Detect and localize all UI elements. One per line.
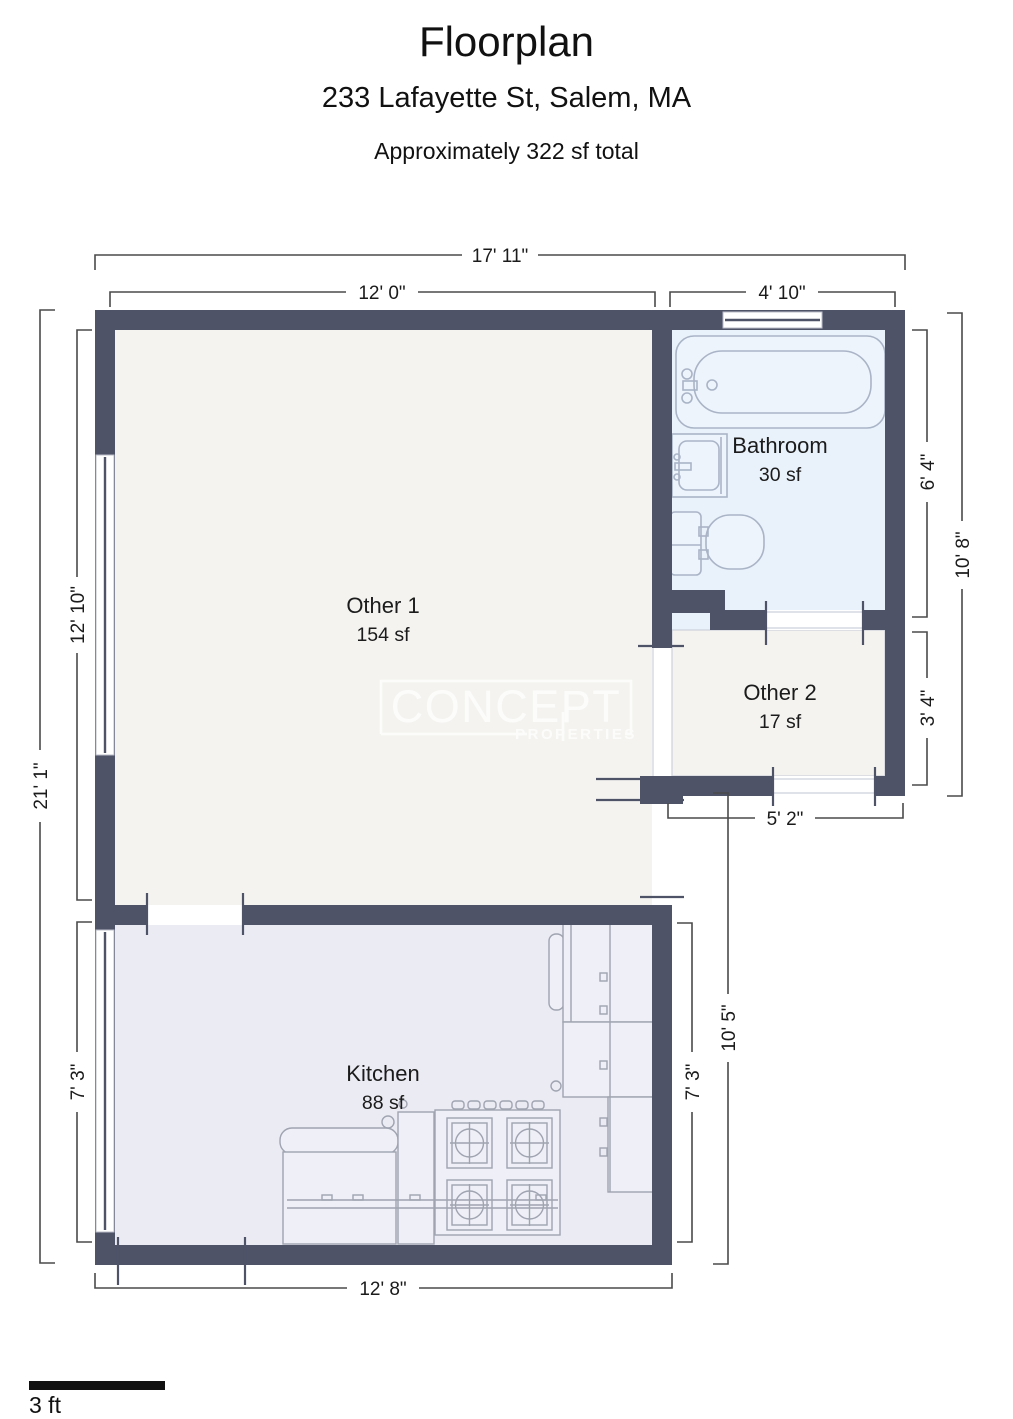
other2-area: 17 sf [759, 711, 802, 733]
other1-area: 154 sf [356, 624, 410, 646]
watermark: CONCEPT PROPERTIES [381, 681, 637, 743]
dim-kitchen-height-right: 7' 3" [677, 923, 704, 1242]
floorplan-drawing: CONCEPT PROPERTIES [0, 0, 1013, 1419]
bathroom-area: 30 sf [759, 464, 802, 486]
scale-bar-rule [29, 1381, 165, 1390]
bathroom-door-gap [766, 610, 863, 630]
dim-kitchen-right-outer: 10' 5" [713, 793, 740, 1264]
dim-label: 17' 11" [472, 246, 529, 267]
floorplan-page: Floorplan 233 Lafayette St, Salem, MA Ap… [0, 0, 1013, 1419]
dim-kitchen-width: 12' 8" [95, 1273, 672, 1300]
wall-kitchen-right [652, 905, 672, 1265]
dim-bathroom-height: 6' 4" [912, 330, 939, 617]
wall-bathroom-bottom-right [863, 610, 885, 630]
other2-name: Other 2 [743, 680, 816, 705]
dim-label: 7' 3" [683, 1064, 704, 1101]
wall-bathroom-bottom-left [710, 610, 766, 630]
dim-bathroom-width: 4' 10" [670, 281, 895, 307]
wall-kitchen-top-right [243, 905, 672, 925]
scale-bar-label: 3 ft [29, 1392, 62, 1418]
other1-name: Other 1 [346, 593, 419, 618]
wall-right-upper [885, 310, 905, 796]
dim-label: 12' 8" [359, 1279, 406, 1300]
kitchen-name: Kitchen [346, 1061, 419, 1086]
kitchen-area: 88 sf [362, 1092, 405, 1114]
watermark-subname: PROPERTIES [515, 726, 637, 743]
wall-kitchen-bottom [95, 1245, 672, 1265]
kitchen-narrow-unit [398, 1100, 434, 1244]
dim-label: 12' 0" [358, 283, 405, 304]
dim-label: 10' 5" [719, 1004, 740, 1051]
wall-bathroom-left [652, 310, 672, 648]
dim-other1-height: 12' 10" [66, 330, 92, 900]
dim-label: 3' 4" [918, 690, 939, 727]
dim-label: 5' 2" [767, 809, 804, 830]
dim-kitchen-height-left: 7' 3" [66, 922, 92, 1242]
dim-label: 4' 10" [758, 283, 805, 304]
dim-label: 21' 1" [31, 762, 52, 809]
watermark-name: CONCEPT [391, 681, 622, 732]
wall-kitchen-top-left [95, 905, 147, 925]
dim-other1-width: 12' 0" [110, 281, 655, 307]
dim-label: 10' 8" [953, 531, 974, 578]
wall-bathroom-step [672, 590, 725, 613]
dim-label: 6' 4" [918, 454, 939, 491]
bathtub [676, 336, 885, 428]
dim-overall-width: 17' 11" [95, 244, 905, 270]
toilet [670, 512, 764, 575]
dim-other2-height: 3' 4" [912, 632, 939, 785]
dim-label: 12' 10" [68, 586, 89, 644]
bathroom-name: Bathroom [732, 433, 827, 458]
dim-right-upper-height: 10' 8" [947, 313, 974, 796]
kitchen-appliance [280, 1116, 398, 1244]
dim-overall-height: 21' 1" [29, 310, 55, 1263]
bathroom-sink [672, 434, 727, 497]
scale-bar: 3 ft [29, 1381, 165, 1418]
dim-other2-width: 5' 2" [668, 803, 903, 830]
wall-other2-bottom-right [875, 776, 905, 796]
stove [435, 1101, 560, 1235]
dim-label: 7' 3" [68, 1064, 89, 1101]
